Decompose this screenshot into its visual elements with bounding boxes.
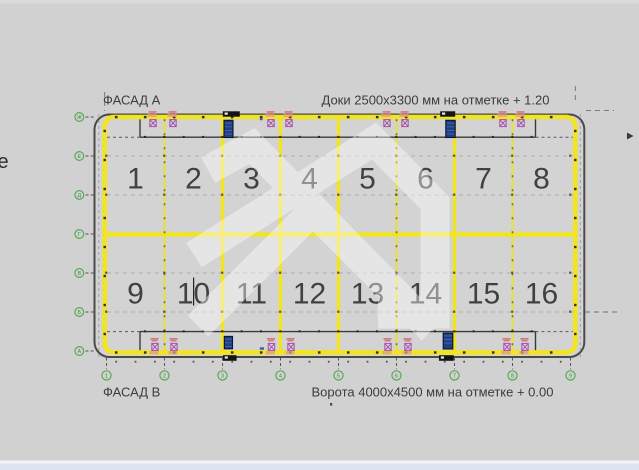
svg-text:Доки 2500x3300 мм на отметке +: Доки 2500x3300 мм на отметке + 1.20	[322, 93, 550, 108]
svg-text:6: 6	[395, 374, 398, 380]
svg-text:Ж: Ж	[77, 115, 82, 121]
svg-text:5: 5	[337, 374, 340, 380]
svg-text:А: А	[78, 349, 82, 355]
svg-text:16: 16	[525, 278, 558, 311]
svg-text:9: 9	[569, 374, 572, 380]
svg-text:Д: Д	[78, 193, 82, 199]
svg-text:9: 9	[127, 278, 144, 311]
svg-text:7: 7	[453, 374, 456, 380]
svg-text:ФАСАД В: ФАСАД В	[103, 385, 160, 400]
svg-text:Ворота 4000x4500 мм на отметке: Ворота 4000x4500 мм на отметке + 0.00	[312, 385, 554, 400]
svg-text:1: 1	[105, 374, 108, 380]
svg-text:8: 8	[511, 374, 514, 380]
svg-text:4: 4	[279, 374, 282, 380]
svg-text:1: 1	[127, 163, 144, 196]
svg-text:2: 2	[163, 374, 166, 380]
svg-text:2: 2	[185, 163, 202, 196]
svg-text:ФАСАД А: ФАСАД А	[103, 93, 161, 108]
svg-text:15: 15	[467, 278, 500, 311]
svg-text:8: 8	[533, 163, 550, 196]
svg-text:Е: Е	[78, 154, 82, 160]
svg-text:Г: Г	[78, 232, 81, 238]
svg-text:В: В	[78, 271, 82, 277]
svg-text:3: 3	[221, 374, 224, 380]
svg-text:12: 12	[293, 278, 326, 311]
svg-text:7: 7	[475, 163, 492, 196]
svg-text:e: e	[0, 151, 9, 173]
svg-text:Б: Б	[78, 310, 82, 316]
svg-text:5: 5	[359, 163, 376, 196]
